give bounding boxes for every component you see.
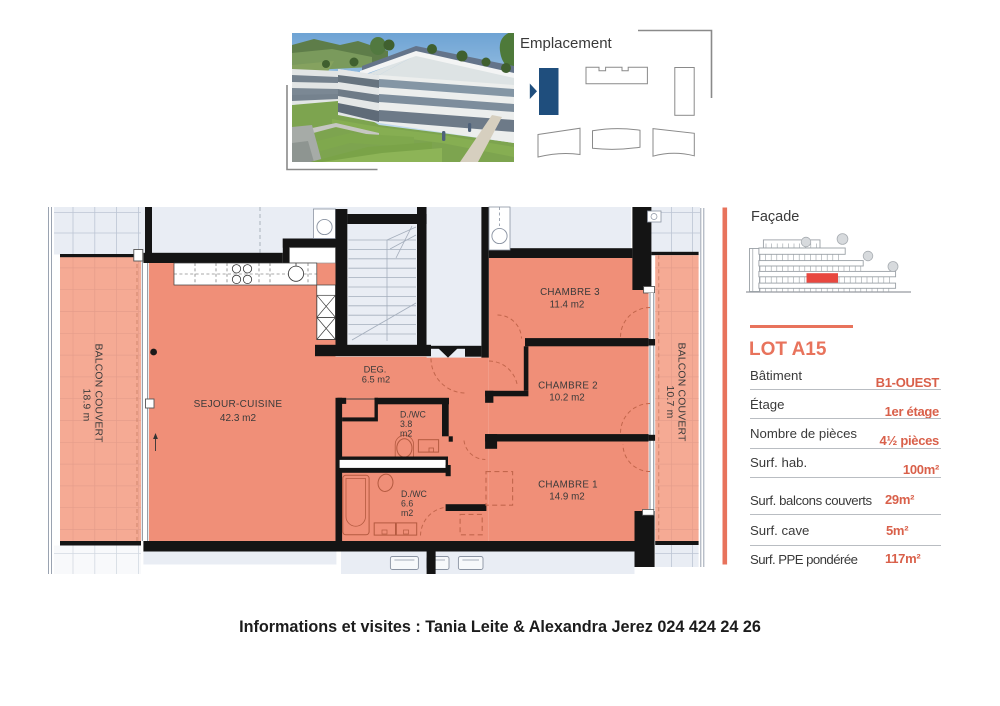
svg-text:CHAMBRE 2: CHAMBRE 2 <box>538 381 598 392</box>
svg-text:3.8: 3.8 <box>400 419 412 429</box>
svg-text:m2: m2 <box>401 508 413 518</box>
svg-text:42.3 m2: 42.3 m2 <box>220 413 257 424</box>
svg-text:10.2 m2: 10.2 m2 <box>549 393 584 404</box>
svg-text:11.4 m2: 11.4 m2 <box>550 300 585 311</box>
svg-text:6.5 m2: 6.5 m2 <box>362 375 390 385</box>
svg-text:DEG.: DEG. <box>364 365 387 375</box>
svg-text:6.6: 6.6 <box>401 499 413 509</box>
svg-text:CHAMBRE 3: CHAMBRE 3 <box>540 287 600 298</box>
svg-text:BALCON COUVERT: BALCON COUVERT <box>93 343 104 442</box>
svg-text:BALCON COUVERT: BALCON COUVERT <box>676 342 687 441</box>
svg-text:D./WC: D./WC <box>400 410 427 420</box>
svg-text:SEJOUR-CUISINE: SEJOUR-CUISINE <box>194 399 283 410</box>
svg-text:m2: m2 <box>400 429 412 439</box>
svg-text:18.9 m: 18.9 m <box>81 389 92 422</box>
svg-text:CHAMBRE 1: CHAMBRE 1 <box>538 480 598 491</box>
svg-text:14.9 m2: 14.9 m2 <box>549 492 584 503</box>
svg-text:D./WC: D./WC <box>401 489 428 499</box>
svg-text:10.7 m: 10.7 m <box>664 386 675 419</box>
